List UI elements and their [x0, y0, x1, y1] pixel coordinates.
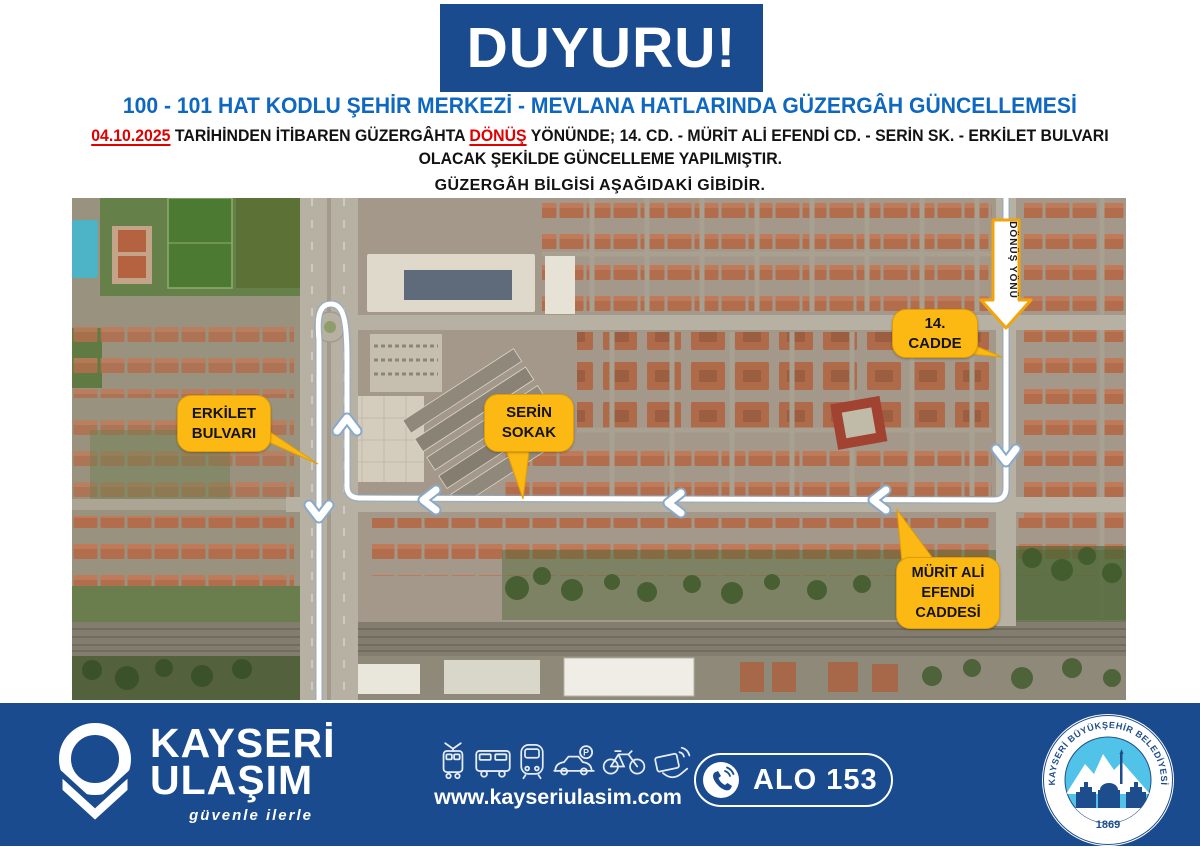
announcement-banner: DUYURU!	[440, 4, 763, 92]
seal-year: 1869	[1096, 819, 1120, 831]
bicycle-icon	[602, 741, 646, 781]
footer: KAYSERİ ULAŞIM güvenle ilerle	[0, 703, 1200, 846]
website-url: www.kayseriulasim.com	[428, 785, 688, 810]
phone-icon	[701, 760, 741, 800]
effective-date: 04.10.2025	[91, 127, 170, 145]
brand-wordmark: KAYSERİ ULAŞIM	[150, 725, 336, 799]
direction-highlight: DÖNÜŞ	[469, 127, 526, 145]
bus-icon	[474, 741, 512, 781]
kayseri-ulasim-logo	[48, 717, 148, 835]
route-update-headline: 100 - 101 HAT KODLU ŞEHİR MERKEZİ - MEVL…	[0, 93, 1200, 119]
parking-letter: P	[583, 748, 589, 758]
brand-slogan: güvenle ilerle	[150, 807, 313, 824]
transport-icons: P	[438, 741, 696, 781]
street-label-serin-sokak: SERİN SOKAK	[484, 394, 574, 452]
announcement-title: DUYURU!	[467, 15, 737, 81]
route-map: DÖNÜŞ YÖNÜ 14. CADDE ERKİLET BULVARI SER…	[72, 198, 1126, 700]
metro-icon	[518, 741, 546, 781]
street-label-14-cadde: 14. CADDE	[892, 309, 978, 358]
contactless-card-icon	[652, 741, 696, 781]
street-label-murit-ali-efendi: MÜRİT ALİ EFENDİ CADDESİ	[896, 557, 1000, 629]
hotline-badge: ALO 153	[694, 753, 893, 807]
map-subheading: GÜZERGÂH BİLGİSİ AŞAĞIDAKİ GİBİDİR.	[0, 177, 1200, 195]
direction-arrow-label: DÖNÜŞ YÖNÜ	[1007, 221, 1020, 299]
street-label-erkilet-bulvari: ERKİLET BULVARI	[177, 395, 271, 452]
notice-line-1: 04.10.2025 TARİHİNDEN İTİBAREN GÜZERGÂHT…	[0, 127, 1200, 146]
tram-icon	[438, 741, 468, 781]
announcement-poster: DUYURU! 100 - 101 HAT KODLU ŞEHİR MERKEZ…	[0, 0, 1200, 849]
hotline-number: ALO 153	[753, 764, 878, 797]
municipality-seal: KAYSERİ BÜYÜKŞEHİR BELEDİYESİ 1869	[1040, 712, 1176, 848]
car-parking-icon: P	[552, 741, 596, 781]
notice-line-2: OLACAK ŞEKİLDE GÜNCELLEME YAPILMIŞTIR.	[0, 150, 1200, 169]
